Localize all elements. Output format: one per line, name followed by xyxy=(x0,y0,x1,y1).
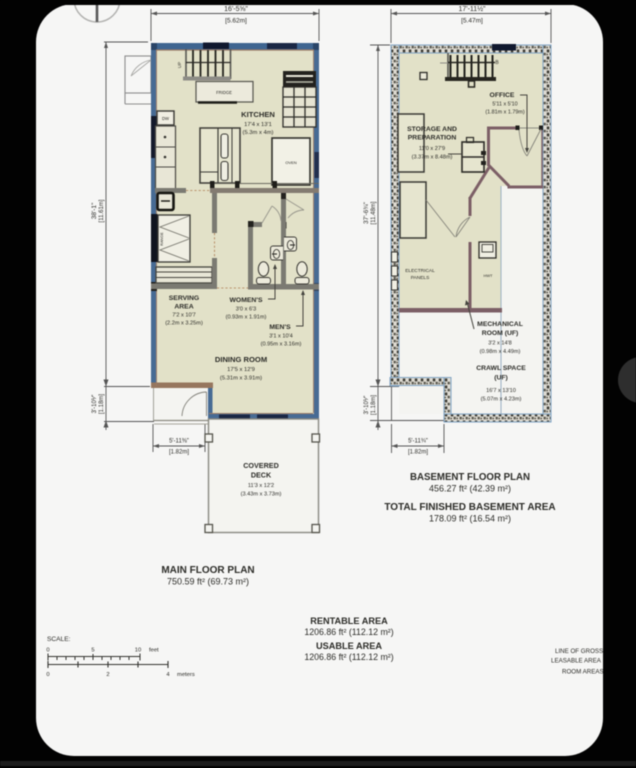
svg-text:CRAWL SPACE: CRAWL SPACE xyxy=(476,365,526,372)
svg-text:USABLE AREA: USABLE AREA xyxy=(316,641,382,651)
svg-text:3'0 x 6'3: 3'0 x 6'3 xyxy=(236,307,257,313)
svg-text:(0.98m x 4.49m): (0.98m x 4.49m) xyxy=(480,349,521,355)
svg-text:11'3 x 12'2: 11'3 x 12'2 xyxy=(248,483,274,489)
svg-text:10: 10 xyxy=(135,648,141,654)
svg-text:LEASABLE AREA: LEASABLE AREA xyxy=(551,658,602,665)
svg-text:MECHANICAL: MECHANICAL xyxy=(477,321,523,328)
svg-text:COVERED: COVERED xyxy=(243,461,279,470)
svg-text:(5.07m x 4.23m): (5.07m x 4.23m) xyxy=(481,397,522,403)
svg-text:16'7 x 13'10: 16'7 x 13'10 xyxy=(486,388,516,394)
svg-text:(5.31m x 3.91m): (5.31m x 3.91m) xyxy=(220,376,262,382)
svg-text:178.09 ft² (16.54 m²): 178.09 ft² (16.54 m²) xyxy=(429,514,511,524)
svg-text:11'0 x 27'9: 11'0 x 27'9 xyxy=(419,146,445,152)
svg-text:(3.43m x 3.73m): (3.43m x 3.73m) xyxy=(241,492,282,498)
svg-text:TOTAL FINISHED BASEMENT AREA: TOTAL FINISHED BASEMENT AREA xyxy=(384,502,555,513)
svg-text:(3.37m x 8.48m): (3.37m x 8.48m) xyxy=(412,155,453,161)
svg-text:37'-6¾": 37'-6¾" xyxy=(363,201,370,224)
svg-text:OVEN: OVEN xyxy=(285,160,296,165)
svg-text:[1.82m]: [1.82m] xyxy=(408,450,428,456)
svg-text:SCALE:: SCALE: xyxy=(47,636,71,643)
svg-text:5: 5 xyxy=(91,648,94,654)
svg-text:1206.86 ft² (112.12 m²): 1206.86 ft² (112.12 m²) xyxy=(304,652,393,662)
svg-text:FRIDGE: FRIDGE xyxy=(216,90,232,95)
svg-text:LINE OF GROSS: LINE OF GROSS xyxy=(555,648,603,655)
svg-text:[11.61m]: [11.61m] xyxy=(99,199,105,222)
svg-text:[11.48m]: [11.48m] xyxy=(371,201,377,224)
svg-text:OFFICE: OFFICE xyxy=(490,92,515,99)
svg-text:0: 0 xyxy=(46,648,49,654)
svg-text:SERVING: SERVING xyxy=(169,295,199,302)
svg-text:WOMEN'S: WOMEN'S xyxy=(230,297,263,304)
svg-text:RANGE: RANGE xyxy=(160,232,164,246)
svg-text:MAIN FLOOR PLAN: MAIN FLOOR PLAN xyxy=(161,565,254,576)
svg-text:5'-11⅜": 5'-11⅜" xyxy=(169,439,189,445)
svg-text:0: 0 xyxy=(46,672,49,678)
svg-text:PANELS: PANELS xyxy=(411,275,430,281)
svg-text:[1.82m]: [1.82m] xyxy=(169,450,189,456)
svg-text:ELECTRICAL: ELECTRICAL xyxy=(405,268,435,274)
svg-text:BASEMENT FLOOR PLAN: BASEMENT FLOOR PLAN xyxy=(410,472,530,483)
svg-text:456.27 ft² (42.39 m²): 456.27 ft² (42.39 m²) xyxy=(429,484,511,494)
svg-text:(1.81m x 1.79m): (1.81m x 1.79m) xyxy=(485,110,524,116)
svg-text:16'-5⅝": 16'-5⅝" xyxy=(224,6,248,13)
svg-text:AREA: AREA xyxy=(174,304,193,311)
svg-text:meters: meters xyxy=(177,672,195,678)
svg-text:2: 2 xyxy=(106,672,109,678)
svg-text:UP: UP xyxy=(177,62,182,68)
svg-text:DW: DW xyxy=(162,116,169,121)
svg-text:ROOM (UF): ROOM (UF) xyxy=(482,330,519,337)
svg-text:38'-1": 38'-1" xyxy=(91,202,98,219)
svg-text:RENTABLE AREA: RENTABLE AREA xyxy=(310,616,388,626)
svg-text:[5.62m]: [5.62m] xyxy=(225,18,247,25)
svg-text:KITCHEN: KITCHEN xyxy=(241,110,275,119)
svg-text:7'2 x 10'7: 7'2 x 10'7 xyxy=(172,313,196,319)
svg-text:(0.93m x 1.91m): (0.93m x 1.91m) xyxy=(226,315,267,321)
svg-text:17'-11½": 17'-11½" xyxy=(458,5,486,13)
svg-text:DECK: DECK xyxy=(251,471,272,480)
svg-text:[1.18m]: [1.18m] xyxy=(99,394,105,414)
svg-text:PREPARATION: PREPARATION xyxy=(408,135,457,142)
svg-text:750.59 ft² (69.73 m²): 750.59 ft² (69.73 m²) xyxy=(167,577,249,587)
svg-text:(2.2m x 3.25m): (2.2m x 3.25m) xyxy=(165,321,203,327)
svg-text:3'1 x 10'4: 3'1 x 10'4 xyxy=(269,334,293,340)
svg-text:3'-10⅟": 3'-10⅟" xyxy=(364,396,370,415)
svg-text:feet: feet xyxy=(149,648,159,654)
svg-text:17'5 x 12'9: 17'5 x 12'9 xyxy=(227,367,255,373)
svg-text:MEN'S: MEN'S xyxy=(269,324,291,331)
svg-text:DINING ROOM: DINING ROOM xyxy=(215,355,267,364)
svg-text:(UF): (UF) xyxy=(494,375,508,382)
svg-text:(5.3m x 4m): (5.3m x 4m) xyxy=(243,130,274,136)
svg-text:[1.18m]: [1.18m] xyxy=(371,395,377,415)
svg-text:3'2 x 14'8: 3'2 x 14'8 xyxy=(488,341,512,347)
svg-text:17'4 x 13'1: 17'4 x 13'1 xyxy=(244,122,272,128)
svg-text:3'-10⅟": 3'-10⅟" xyxy=(92,395,98,414)
svg-text:HWT: HWT xyxy=(483,273,493,278)
svg-text:[5.47m]: [5.47m] xyxy=(461,18,483,25)
svg-text:5'-11¾": 5'-11¾" xyxy=(408,439,428,445)
svg-text:1206.86 ft² (112.12 m²): 1206.86 ft² (112.12 m²) xyxy=(304,627,393,637)
svg-text:ROOM AREAS: ROOM AREAS xyxy=(562,669,604,676)
svg-text:(0.95m x 3.16m): (0.95m x 3.16m) xyxy=(261,342,302,348)
svg-text:5'11 x 5'10: 5'11 x 5'10 xyxy=(492,102,517,108)
svg-text:STORAGE AND: STORAGE AND xyxy=(407,126,457,133)
